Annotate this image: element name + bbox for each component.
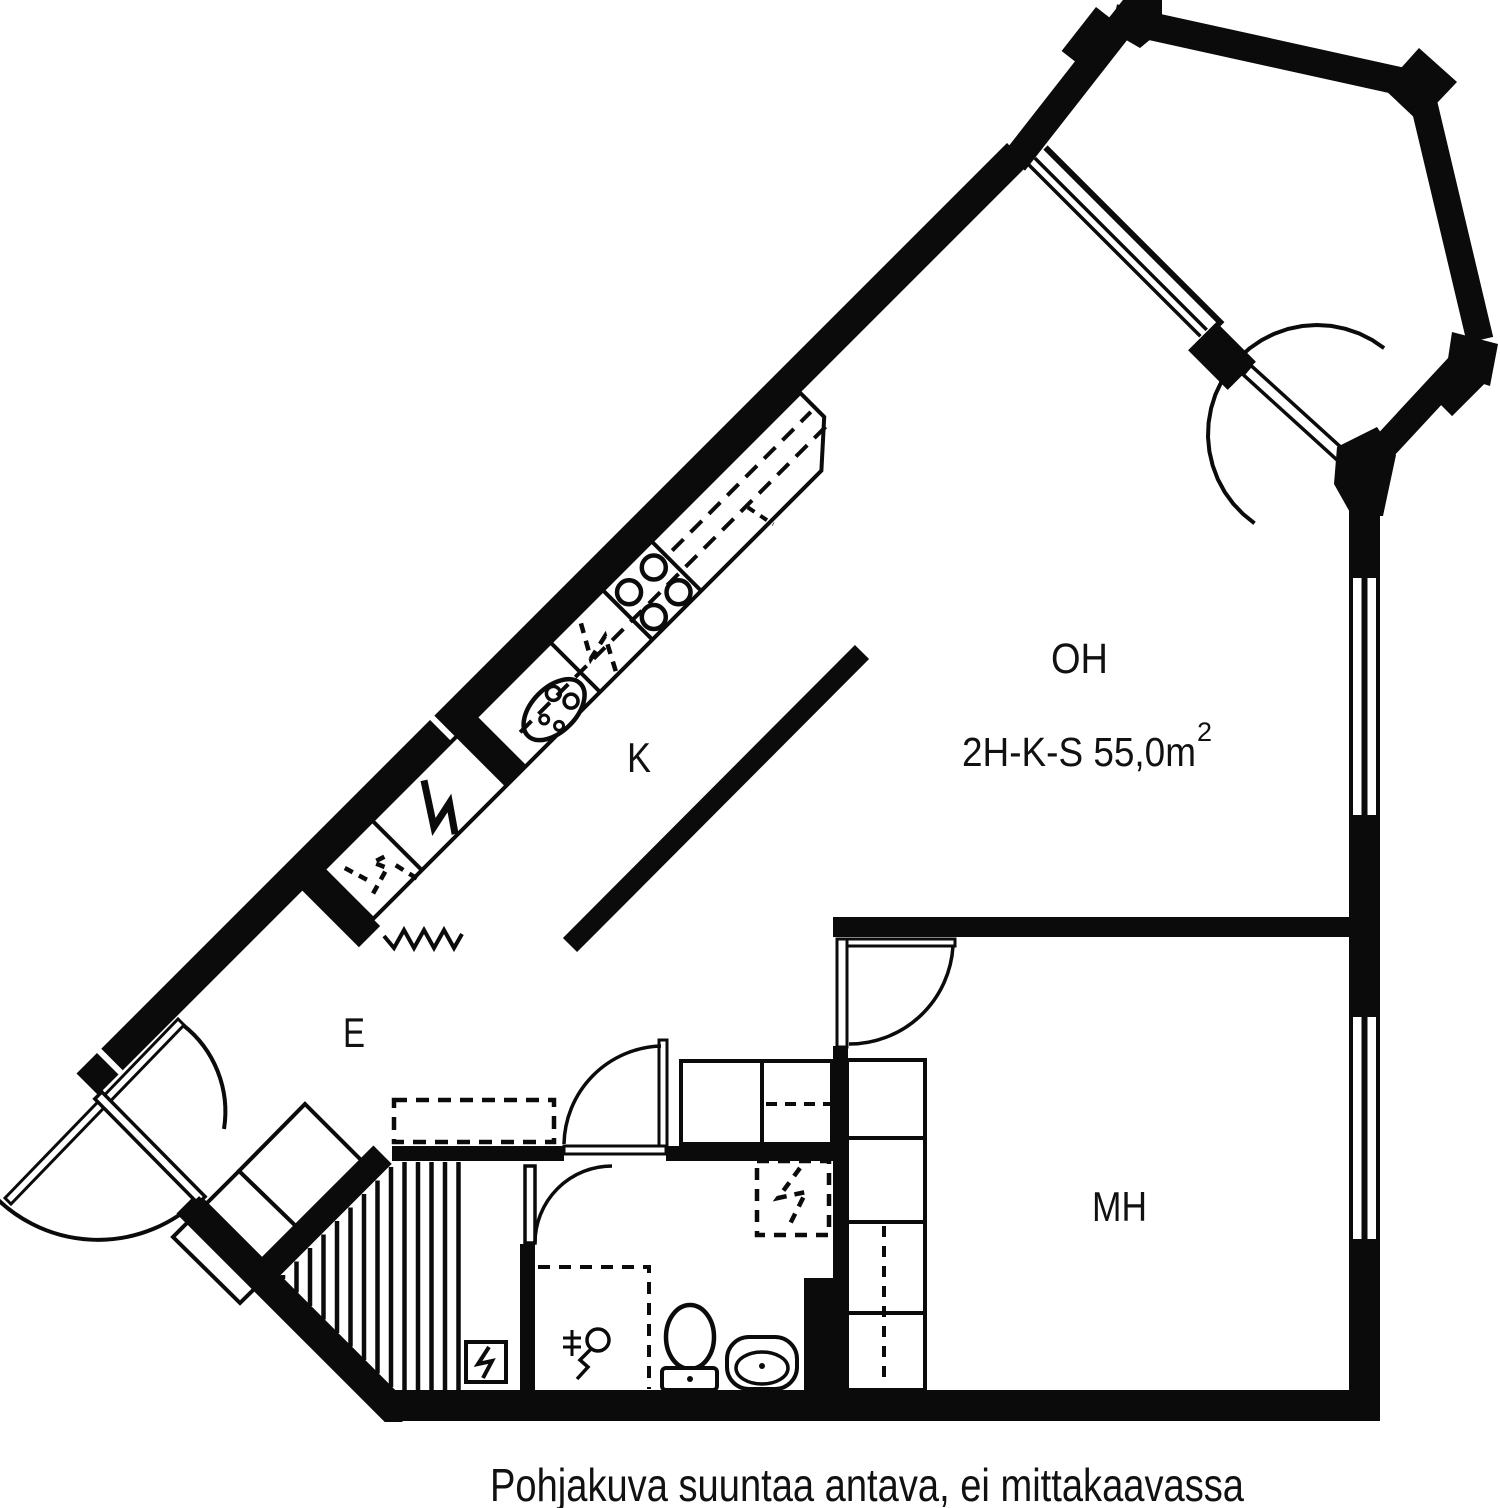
- svg-text:Pohjakuva suuntaa antava, ei m: Pohjakuva suuntaa antava, ei mittakaavas…: [490, 1459, 1244, 1508]
- svg-text:K: K: [627, 734, 651, 781]
- svg-text:MH: MH: [1092, 1183, 1147, 1230]
- svg-text:E: E: [343, 1009, 365, 1056]
- svg-text:2: 2: [1197, 717, 1212, 747]
- svg-text:OH: OH: [1051, 635, 1108, 683]
- svg-text:2H-K-S 55,0m: 2H-K-S 55,0m: [962, 729, 1196, 775]
